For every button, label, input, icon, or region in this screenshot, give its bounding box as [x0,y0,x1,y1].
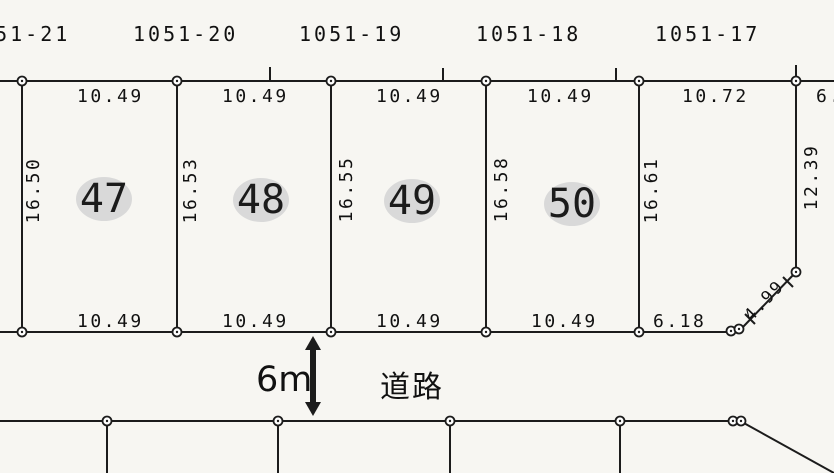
plot-number-49: 49 [384,179,440,223]
cadastral-survey-map: 1051-21 1051-20 1051-19 1051-18 1051-17 … [0,0,834,473]
road-far-diagonal [742,422,834,473]
bottom-dim-5: 6.18 [653,311,706,332]
top-dim-4: 10.49 [527,86,594,107]
right-side-dim: 12.39 [802,142,822,212]
side-dim-4: 16.58 [492,154,512,224]
lot-label-1051-20: 1051-20 [133,22,238,46]
bottom-dim-2: 10.49 [222,311,289,332]
bottom-dim-4: 10.49 [531,311,598,332]
road-width-label: 6m [256,360,312,400]
top-dim-3: 10.49 [376,86,443,107]
plot-number-47: 47 [76,177,132,221]
bottom-dim-1: 10.49 [77,311,144,332]
plot-number-50: 50 [544,182,600,226]
lot-label-1051-19: 1051-19 [299,22,404,46]
side-dim-5: 16.61 [642,155,662,225]
top-dim-5: 10.72 [682,86,749,107]
top-dim-6-clipped: 6. [816,86,834,107]
top-dim-2: 10.49 [222,86,289,107]
plot-number-48: 48 [233,178,289,222]
road-name-label: 道路 [380,362,444,406]
lot-label-1051-18: 1051-18 [476,22,581,46]
side-dim-2: 16.53 [181,155,201,225]
bottom-dim-3: 10.49 [376,311,443,332]
side-dim-1: 16.50 [24,155,44,225]
lot-label-1051-21: 1051-21 [0,22,70,46]
top-dim-1: 10.49 [77,86,144,107]
lot-label-1051-17: 1051-17 [655,22,760,46]
side-dim-3: 16.55 [337,154,357,224]
